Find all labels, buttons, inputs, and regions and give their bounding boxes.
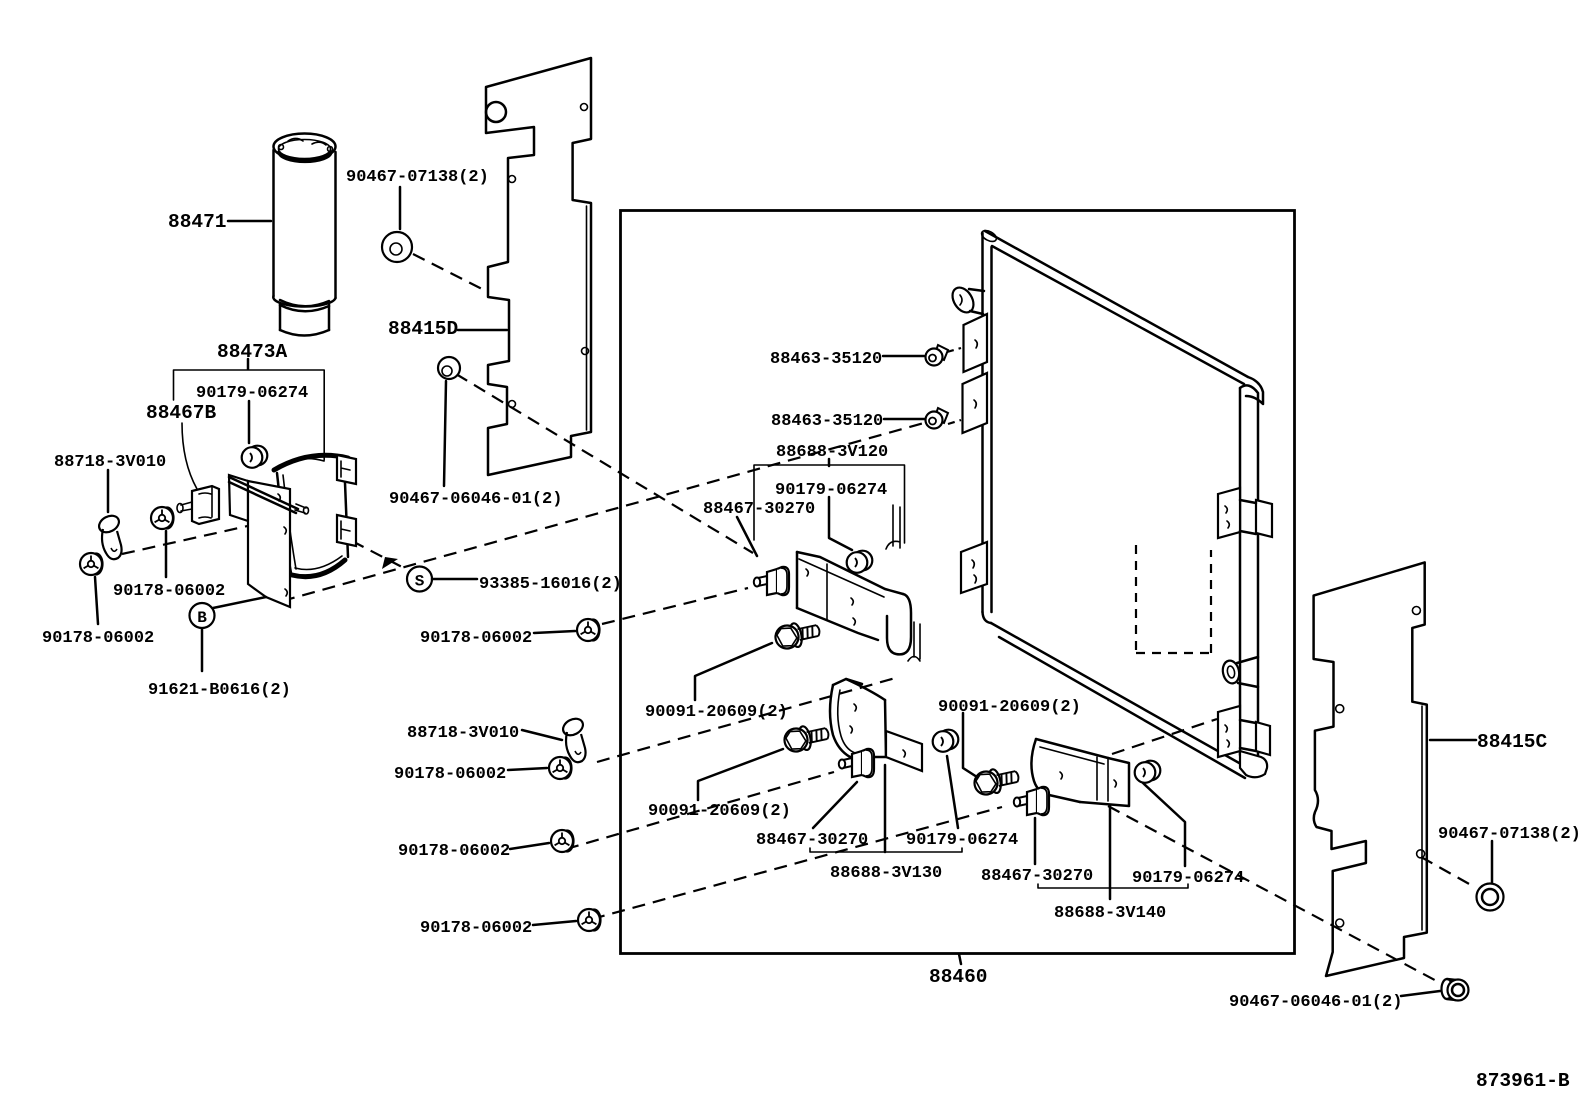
svg-text:B: B	[197, 609, 207, 627]
svg-text:90178-06002: 90178-06002	[113, 582, 225, 601]
svg-text:88467-30270: 88467-30270	[756, 831, 868, 850]
svg-text:88688-3V130: 88688-3V130	[830, 864, 942, 883]
svg-text:88471: 88471	[168, 211, 227, 233]
svg-text:90091-20609(2): 90091-20609(2)	[938, 698, 1081, 717]
svg-text:90178-06002: 90178-06002	[420, 629, 532, 648]
svg-text:88415D: 88415D	[388, 318, 458, 340]
svg-text:90467-06046-01(2): 90467-06046-01(2)	[389, 490, 562, 509]
svg-text:88460: 88460	[929, 966, 988, 988]
svg-text:90467-06046-01(2): 90467-06046-01(2)	[1229, 993, 1402, 1012]
svg-text:S: S	[415, 573, 425, 591]
svg-text:90091-20609(2): 90091-20609(2)	[648, 802, 791, 821]
svg-text:88463-35120: 88463-35120	[771, 412, 883, 431]
svg-text:88688-3V140: 88688-3V140	[1054, 904, 1166, 923]
svg-text:88415C: 88415C	[1477, 731, 1548, 753]
svg-text:90179-06274: 90179-06274	[1132, 869, 1244, 888]
svg-text:90178-06002: 90178-06002	[420, 919, 532, 938]
svg-text:90178-06002: 90178-06002	[398, 842, 510, 861]
svg-text:88467-30270: 88467-30270	[981, 867, 1093, 886]
svg-text:90178-06002: 90178-06002	[394, 765, 506, 784]
svg-text:90179-06274: 90179-06274	[775, 481, 887, 500]
svg-text:91621-B0616(2): 91621-B0616(2)	[148, 681, 291, 700]
svg-text:88718-3V010: 88718-3V010	[54, 453, 166, 472]
svg-text:93385-16016(2): 93385-16016(2)	[479, 575, 622, 594]
svg-text:88463-35120: 88463-35120	[770, 350, 882, 369]
svg-text:88688-3V120: 88688-3V120	[776, 443, 888, 462]
svg-text:90467-07138(2): 90467-07138(2)	[1438, 825, 1581, 844]
svg-text:88467-30270: 88467-30270	[703, 500, 815, 519]
svg-text:88473A: 88473A	[217, 341, 288, 363]
svg-text:873961-B: 873961-B	[1476, 1070, 1570, 1092]
svg-text:90091-20609(2): 90091-20609(2)	[645, 703, 788, 722]
svg-text:90178-06002: 90178-06002	[42, 629, 154, 648]
svg-text:90179-06274: 90179-06274	[196, 384, 308, 403]
svg-text:90179-06274: 90179-06274	[906, 831, 1018, 850]
svg-text:88467B: 88467B	[146, 402, 217, 424]
svg-text:88718-3V010: 88718-3V010	[407, 724, 519, 743]
svg-text:90467-07138(2): 90467-07138(2)	[346, 168, 489, 187]
